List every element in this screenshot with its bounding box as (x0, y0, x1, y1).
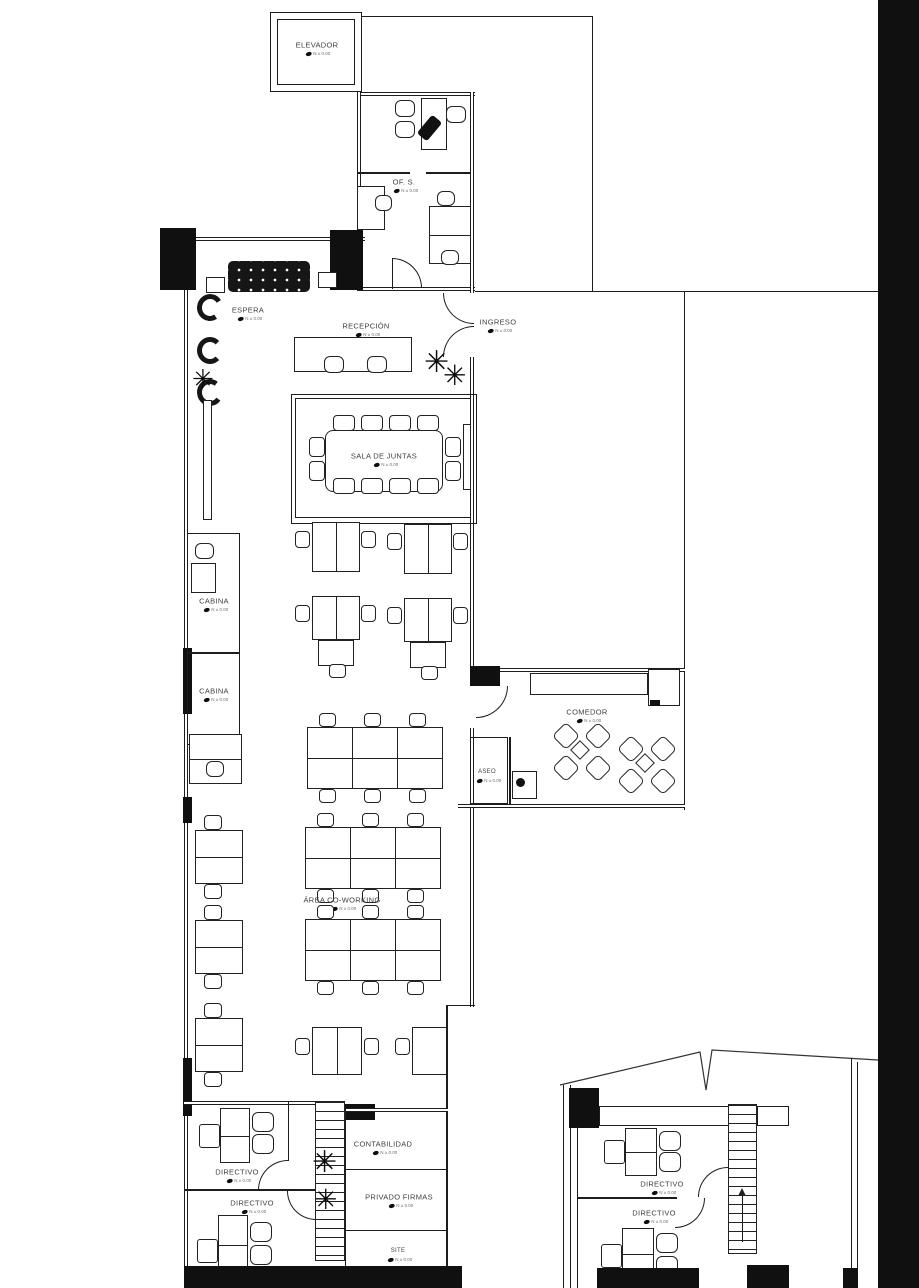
wall-right (470, 92, 474, 293)
chair (319, 713, 336, 727)
side-table (206, 277, 225, 293)
chair (362, 981, 379, 995)
chair (617, 767, 645, 795)
desk (410, 642, 446, 668)
chair (362, 905, 379, 919)
door-arc (392, 258, 422, 288)
chair (204, 884, 222, 899)
w (345, 1108, 346, 1270)
chair (417, 415, 439, 431)
level-marker-elevador: N ± 0.00 (306, 51, 330, 56)
chair (649, 767, 677, 795)
chair (295, 605, 310, 622)
desk (625, 1128, 657, 1176)
dwh (357, 92, 475, 96)
chair (317, 813, 334, 827)
desk (318, 640, 354, 666)
boundary-line (684, 292, 685, 810)
room-label-sala-de-juntas: SALA DE JUNTAS (351, 452, 417, 461)
chair (389, 415, 411, 431)
column (345, 1104, 375, 1120)
chair (445, 437, 461, 457)
chair (252, 1134, 274, 1154)
level-marker-directivo-2: N ± 0.00 (242, 1209, 266, 1214)
level-marker-cabina-2: N ± 0.00 (204, 697, 228, 702)
room-label-directivo-2: DIRECTIVO (230, 1199, 274, 1208)
chair (659, 1131, 681, 1151)
bench-cluster (305, 827, 441, 889)
chair (364, 713, 381, 727)
room-label-cabina-1: CABINA (199, 597, 229, 606)
w (857, 1062, 858, 1288)
room-label-ingreso: INGRESO (480, 318, 517, 327)
chair (364, 1038, 379, 1055)
chair (199, 1124, 220, 1148)
chair (584, 754, 612, 782)
w (742, 1196, 743, 1242)
chair (437, 191, 455, 206)
wall (345, 1108, 448, 1112)
chair (445, 461, 461, 481)
room-label-site: SITE (391, 1248, 406, 1254)
chair (361, 605, 376, 622)
lounge-chair (197, 337, 223, 364)
room-label-espera: ESPERA (232, 306, 264, 315)
chair (446, 106, 466, 123)
boundary-line (592, 16, 593, 292)
desk (191, 563, 216, 593)
tufted-sofa (228, 261, 310, 292)
w (288, 1101, 289, 1161)
room-label-cabina-2: CABINA (199, 687, 229, 696)
chair (317, 905, 334, 919)
desk-pair (404, 524, 452, 574)
chair (295, 1038, 310, 1055)
level-marker-aseo: N ± 0.00 (477, 778, 501, 783)
bench-cluster (305, 919, 441, 981)
level-marker-privado-firmas: N ± 0.00 (389, 1203, 413, 1208)
stair-direction-arrow (738, 1188, 746, 1196)
chair (206, 761, 224, 777)
chair (361, 478, 383, 494)
level-marker-contabilidad: N ± 0.00 (373, 1150, 397, 1155)
chair (395, 121, 415, 138)
reception-desk (294, 337, 412, 372)
sink-basin (516, 778, 525, 787)
door-arc (698, 1167, 728, 1197)
level-marker-sala-de-juntas: N ± 0.00 (374, 462, 398, 467)
chair (409, 713, 426, 727)
desk-pair (312, 522, 360, 572)
desk (195, 1018, 243, 1072)
wall-bottom (184, 1266, 462, 1288)
chair (364, 789, 381, 803)
desk (195, 830, 243, 884)
boundary-line (362, 16, 592, 17)
chair (250, 1245, 272, 1265)
side-table (318, 272, 337, 288)
chair (584, 722, 612, 750)
level-marker-ingreso: N ± 0.00 (488, 328, 512, 333)
plant-icon: ✳ (443, 362, 466, 390)
room-label-of-s: OF. S. (393, 178, 416, 187)
chair (375, 195, 392, 211)
level-marker-comedor: N ± 0.00 (577, 718, 601, 723)
chair (195, 543, 214, 559)
chair (453, 533, 468, 550)
w (563, 1085, 564, 1288)
level-marker-detail-directivo-1: N ± 0.00 (652, 1190, 676, 1195)
column (160, 228, 196, 290)
room-label-recepcion: RECEPCIÓN (342, 322, 389, 331)
chair (417, 478, 439, 494)
chair (656, 1233, 678, 1253)
chair (407, 813, 424, 827)
bench-cluster (307, 727, 443, 789)
chair (604, 1140, 625, 1164)
wall-left (184, 235, 188, 1288)
w (345, 1169, 447, 1170)
desk (195, 920, 243, 974)
chair (317, 981, 334, 995)
chair (407, 981, 424, 995)
floor-plan: ELEVADOR N ± 0.00 OF. S. N ± 0.00 ✳ ESPE… (0, 0, 919, 1288)
desk (412, 1027, 448, 1075)
room-label-detail-directivo-2: DIRECTIVO (632, 1209, 676, 1218)
chair (319, 789, 336, 803)
boundary-line (475, 291, 880, 292)
chair (324, 356, 344, 373)
beam (599, 1106, 789, 1126)
room-label-elevador: ELEVADOR (296, 41, 339, 50)
desk (220, 1108, 250, 1163)
room-label-aseo: ASEO (478, 769, 496, 775)
chair (204, 905, 222, 920)
chair (387, 533, 402, 550)
chair (309, 461, 325, 481)
chair (407, 889, 424, 903)
w (577, 1197, 677, 1199)
break-line (555, 1038, 885, 1098)
chair (197, 1239, 218, 1263)
wall (458, 804, 685, 808)
level-marker-espera: N ± 0.00 (238, 316, 262, 321)
chair (295, 531, 310, 548)
chair (389, 478, 411, 494)
desk-pair (312, 1027, 362, 1075)
level-marker-cabina-1: N ± 0.00 (204, 607, 228, 612)
w (851, 1058, 852, 1288)
chair (309, 437, 325, 457)
room-label-contabilidad: CONTABILIDAD (354, 1140, 412, 1149)
w (577, 1126, 578, 1288)
w (392, 258, 393, 289)
chair (329, 664, 346, 678)
room-label-directivo-1: DIRECTIVO (215, 1168, 259, 1177)
wall-bottom (747, 1265, 789, 1288)
door-arc (443, 293, 474, 324)
chair (409, 789, 426, 803)
room-label-detail-directivo-1: DIRECTIVO (640, 1180, 684, 1189)
sink (512, 771, 537, 799)
w (426, 172, 472, 174)
chair (601, 1244, 622, 1268)
lounge-chair (194, 292, 225, 324)
room-label-comedor: COMEDOR (566, 708, 607, 717)
chair (362, 813, 379, 827)
column (183, 1058, 192, 1116)
plant-icon: ✳ (312, 1148, 337, 1178)
room-label-privado-firmas: PRIVADO FIRMAS (365, 1193, 433, 1202)
chair (204, 1003, 222, 1018)
plant-icon: ✳ (314, 1186, 337, 1214)
chair (361, 531, 376, 548)
chair (361, 415, 383, 431)
chair (204, 815, 222, 830)
chair (333, 415, 355, 431)
plant-icon: ✳ (192, 366, 214, 392)
chair (395, 100, 415, 117)
room-label-area-coworking: ÁREA CO-WORKING (303, 896, 380, 905)
level-marker-site: N ± 0.00 (388, 1257, 412, 1262)
col (650, 700, 660, 706)
w (358, 172, 410, 174)
wall-shelf (203, 400, 212, 520)
chair (387, 607, 402, 624)
level-marker-area-coworking: N ± 0.00 (332, 906, 356, 911)
counter (530, 673, 648, 695)
shape (560, 1050, 878, 1090)
level-marker-of-s: N ± 0.00 (394, 188, 418, 193)
staircase (315, 1101, 345, 1261)
w (345, 1230, 447, 1231)
wall-bottom (843, 1268, 858, 1288)
chair (407, 905, 424, 919)
door-arc (258, 1160, 288, 1190)
chair (552, 754, 580, 782)
chair (659, 1152, 681, 1172)
level-marker-directivo-1: N ± 0.00 (227, 1178, 251, 1183)
chair (204, 1072, 222, 1087)
door-arc (675, 1198, 705, 1228)
chair (649, 735, 677, 763)
neighboring-mass (878, 0, 919, 1288)
chair (395, 1038, 410, 1055)
chair (421, 666, 438, 680)
desk-pair (404, 598, 452, 642)
chair (204, 974, 222, 989)
wall (184, 1101, 317, 1105)
column (569, 1088, 599, 1128)
wall-bottom (597, 1268, 699, 1288)
credenza (463, 424, 471, 490)
chair (252, 1112, 274, 1132)
door-arc (476, 686, 508, 718)
desk-pair (312, 596, 360, 640)
w (509, 737, 511, 804)
chair (333, 478, 355, 494)
chair (250, 1222, 272, 1242)
w (448, 1005, 475, 1006)
chair (441, 250, 459, 265)
column (470, 666, 500, 686)
column (183, 797, 192, 823)
door-arc (287, 1191, 316, 1220)
chair (453, 607, 468, 624)
w (757, 1106, 758, 1126)
chair (367, 356, 387, 373)
level-marker-detail-directivo-2: N ± 0.00 (644, 1219, 668, 1224)
